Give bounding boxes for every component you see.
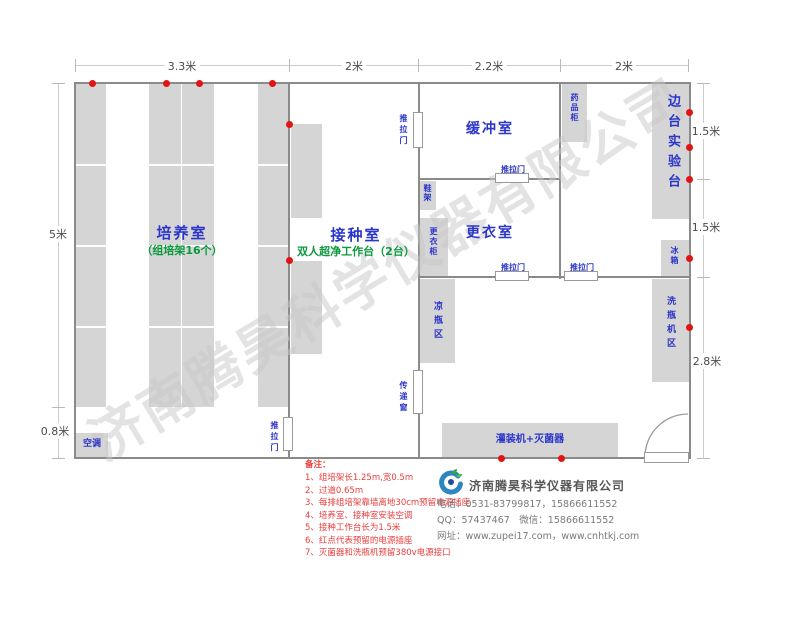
room-label-buffer: 缓冲室 — [440, 118, 540, 138]
power-outlet-dot — [196, 80, 203, 87]
sliding-door-label-5: 推拉门 — [566, 263, 598, 272]
dim-right-3: 2.8米 — [690, 353, 725, 369]
dim-top-4: 2米 — [612, 58, 636, 74]
transfer-window — [413, 370, 423, 414]
power-outlet-dot — [686, 109, 693, 116]
wall-buffer-changing — [418, 178, 561, 180]
dim-tick — [52, 458, 65, 459]
lab-floor-plan: 3.3米 2米 2.2米 2米 5米 0.8米 1.5米 1.5米 2.8米 济… — [0, 0, 800, 600]
sliding-door-label-3: 推拉门 — [497, 165, 529, 174]
cooling-bottle-label: 凉瓶区 — [432, 301, 441, 343]
power-outlet-dot — [686, 144, 693, 151]
company-phone: 电话：0531-83799817，15866611552 — [437, 496, 617, 510]
room-sublabel-inoculation: 双人超净工作台（2台） — [280, 243, 432, 259]
wall-buffer-sideroom — [559, 82, 561, 279]
company-website: 网址：www.zupei17.com，www.cnhtkj.com — [437, 528, 639, 542]
wardrobe-label: 更衣柜 — [429, 227, 438, 257]
dim-tick — [52, 407, 65, 408]
dim-tick — [697, 83, 710, 84]
sliding-door-label-1: 推拉门 — [270, 421, 279, 454]
filling-sterilizer-label: 灌装机+灭菌器 — [442, 435, 618, 444]
clean-bench-2 — [291, 261, 322, 354]
power-outlet-dot — [89, 80, 96, 87]
wall-outer-left — [74, 82, 76, 459]
right-dimension-line — [703, 83, 704, 459]
clean-bench-1 — [291, 124, 322, 218]
room-label-cultivation: 培养室 — [112, 222, 252, 243]
wall-outer-right — [689, 82, 691, 459]
dim-right-1: 1.5米 — [689, 123, 724, 139]
dim-top-3: 2.2米 — [472, 58, 507, 74]
left-dimension-line — [58, 83, 59, 459]
power-outlet-dot — [558, 455, 565, 462]
company-qq-wechat: QQ：57437467 微信：15866611552 — [437, 512, 614, 526]
dim-tick — [289, 59, 290, 72]
room-label-side-bench: 边台实验台 — [663, 94, 682, 219]
wall-cultivation-inoculation — [288, 82, 290, 459]
power-outlet-dot — [286, 121, 293, 128]
dim-tick — [697, 179, 710, 180]
power-outlet-dot — [286, 257, 293, 264]
dim-left-2: 0.8米 — [38, 423, 73, 439]
dim-tick — [52, 83, 65, 84]
company-name: 济南腾昊科学仪器有限公司 — [469, 477, 625, 494]
air-conditioner-label: 空调 — [76, 440, 108, 449]
room-label-changing: 更衣室 — [440, 222, 540, 242]
power-outlet-dot — [686, 324, 693, 331]
sliding-door-buffer-changing — [495, 173, 529, 183]
fridge-label: 冰箱 — [670, 246, 679, 266]
power-outlet-dot — [498, 455, 505, 462]
dim-top-2: 2米 — [342, 58, 366, 74]
wall-changing-bottomarea — [418, 276, 690, 278]
bottle-washer-label: 洗瓶机区 — [665, 296, 674, 352]
power-outlet-dot — [269, 80, 276, 87]
dim-tick — [75, 59, 76, 72]
transfer-window-label: 传递窗 — [399, 381, 408, 414]
sliding-door-label-2: 推拉门 — [399, 114, 408, 147]
dim-tick — [688, 59, 689, 72]
note-item-7: 7、灭菌器和洗瓶机预留380v电源接口 — [305, 549, 485, 558]
medicine-cabinet-label: 药品柜 — [570, 93, 579, 123]
sliding-door-inoculation-buffer — [413, 112, 423, 148]
entrance-door-threshold — [644, 452, 689, 463]
sliding-door-changing-hall — [495, 271, 529, 281]
power-outlet-dot — [686, 255, 693, 262]
wall-outer-bottom — [74, 457, 691, 459]
sliding-door-sideroom-hall — [564, 271, 598, 281]
dim-tick — [560, 59, 561, 72]
dim-right-2: 1.5米 — [689, 219, 724, 235]
room-label-inoculation: 接种室 — [296, 224, 416, 245]
dim-tick — [418, 59, 419, 72]
sliding-door-label-4: 推拉门 — [497, 263, 529, 272]
power-outlet-dot — [686, 176, 693, 183]
dim-tick — [697, 277, 710, 278]
room-sublabel-cultivation: （组培架16个） — [112, 242, 252, 258]
dim-tick — [697, 458, 710, 459]
dim-left-1: 5米 — [46, 226, 70, 242]
shoe-rack-label: 鞋架 — [423, 184, 432, 202]
culture-rack-1 — [76, 84, 106, 407]
power-outlet-dot — [163, 80, 170, 87]
sliding-door-cultivation — [283, 417, 293, 451]
dim-top-1: 3.3米 — [165, 58, 200, 74]
company-logo — [437, 468, 465, 496]
